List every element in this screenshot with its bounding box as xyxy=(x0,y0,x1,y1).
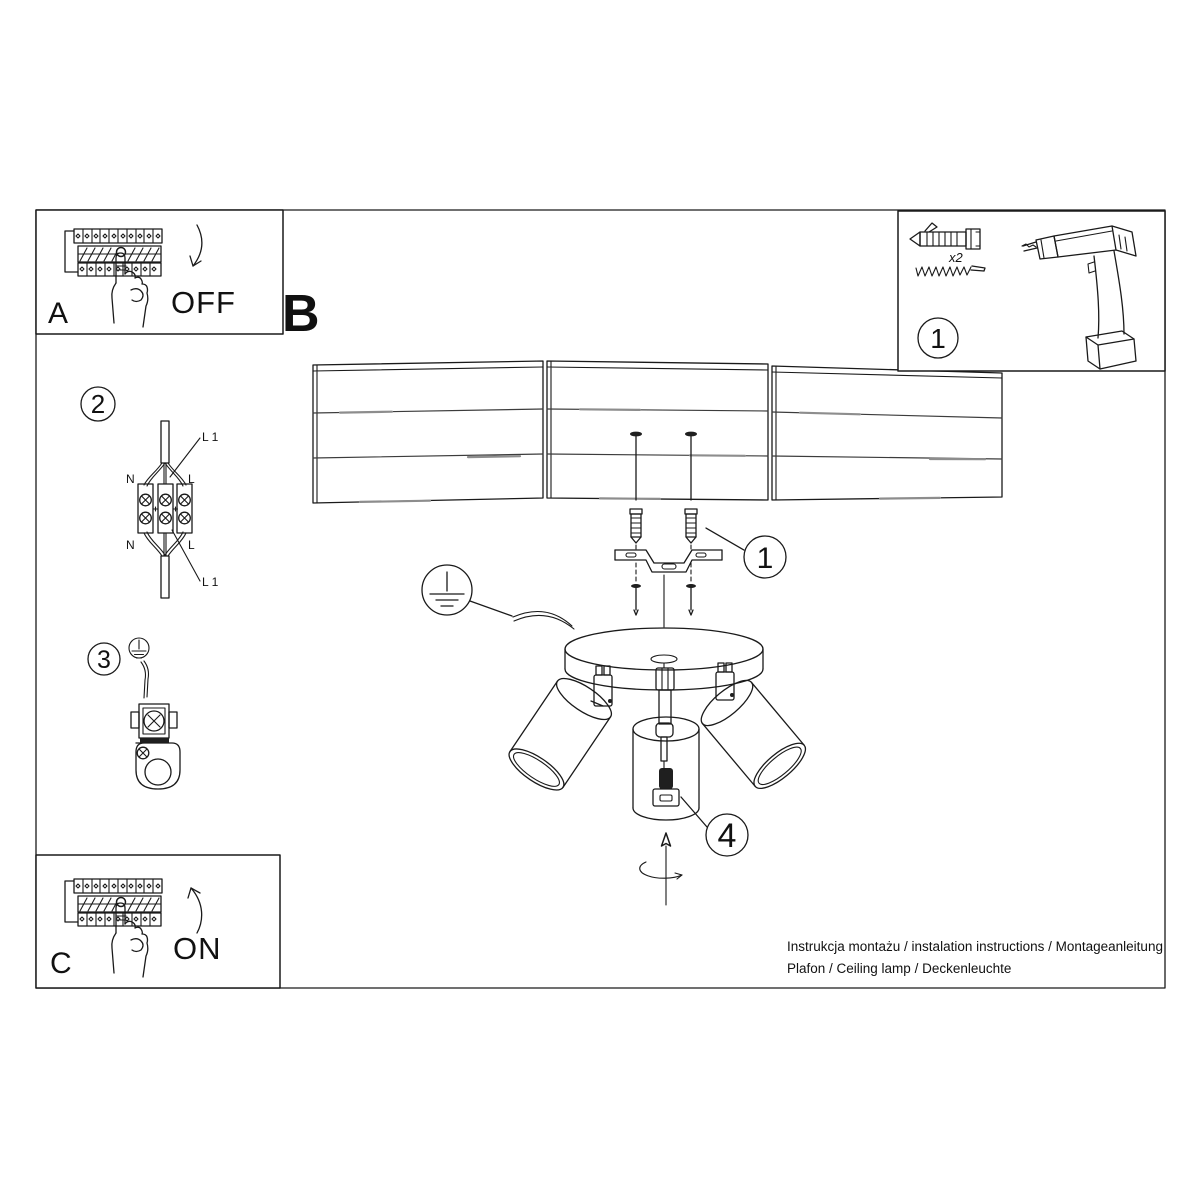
terminal-block xyxy=(138,484,192,533)
l1-top-leader xyxy=(170,438,200,477)
footer-line-2: Plafon / Ceiling lamp / Deckenleuchte xyxy=(787,961,1011,976)
box-a: A OFF xyxy=(36,210,283,334)
live-bottom-label: L xyxy=(188,538,195,552)
step-2-number: 2 xyxy=(91,389,105,419)
shade-right xyxy=(695,673,812,795)
ceiling-panel-left xyxy=(313,361,543,503)
callout-1-number: 1 xyxy=(757,542,774,575)
bulb xyxy=(659,768,673,789)
mounting-bracket xyxy=(615,550,722,572)
l1-bottom-leader xyxy=(172,530,200,581)
l1-top-label: L 1 xyxy=(202,430,219,444)
fixing-screw-right xyxy=(686,563,696,615)
step-1-number: 1 xyxy=(930,323,946,354)
l1-bottom-label: L 1 xyxy=(202,575,219,589)
long-screw-right xyxy=(685,432,697,500)
step-3-grounding: 3 xyxy=(88,638,180,789)
neutral-bottom-label: N xyxy=(126,538,135,552)
callout-1-leader xyxy=(706,528,744,550)
wall-plug-left xyxy=(630,509,642,549)
quantity-label: x2 xyxy=(948,250,964,265)
section-b-label: B xyxy=(282,285,320,343)
earth-symbol-small xyxy=(129,638,149,658)
ground-wire xyxy=(141,661,149,698)
on-label: ON xyxy=(173,931,222,966)
parts-box: x2 1 xyxy=(898,211,1165,371)
rotation-arrow xyxy=(640,833,682,905)
box-a-label: A xyxy=(48,297,68,330)
footer-line-1: Instrukcja montażu / instalation instruc… xyxy=(787,939,1163,954)
cable-top xyxy=(161,421,169,463)
cable-bottom xyxy=(161,556,169,598)
shade-left xyxy=(503,671,617,797)
shade-middle xyxy=(633,717,699,820)
callout-4-number: 4 xyxy=(718,817,737,855)
long-screw-left xyxy=(630,432,642,500)
installation-diagram: 1 xyxy=(0,0,1200,1200)
mounting-hardware: 1 xyxy=(615,432,786,627)
neutral-top-label: N xyxy=(126,472,135,486)
ground-clamp xyxy=(131,704,180,789)
fixing-screw-left xyxy=(631,563,641,615)
box-c: C ON xyxy=(36,855,280,988)
ceiling-panels xyxy=(313,361,1002,503)
wall-plug-right xyxy=(685,509,697,549)
off-label: OFF xyxy=(171,285,236,320)
step-2-wiring: 2 L 1 N L N L L 1 xyxy=(81,387,219,598)
callout-4-leader xyxy=(681,797,707,827)
ground-leader-line xyxy=(470,601,512,616)
instruction-sheet: 1 xyxy=(0,0,1200,1200)
live-top-label: L xyxy=(188,472,195,486)
socket-cap xyxy=(653,789,679,806)
canopy xyxy=(565,628,763,690)
ceiling-lamp: 4 xyxy=(503,628,812,905)
earth-wire xyxy=(513,611,574,629)
ceiling-panel-middle xyxy=(547,361,768,500)
ceiling-panel-right xyxy=(772,366,1002,500)
box-c-label: C xyxy=(50,947,72,980)
ground-symbol-large xyxy=(422,565,472,615)
step-3-number: 3 xyxy=(97,646,111,674)
